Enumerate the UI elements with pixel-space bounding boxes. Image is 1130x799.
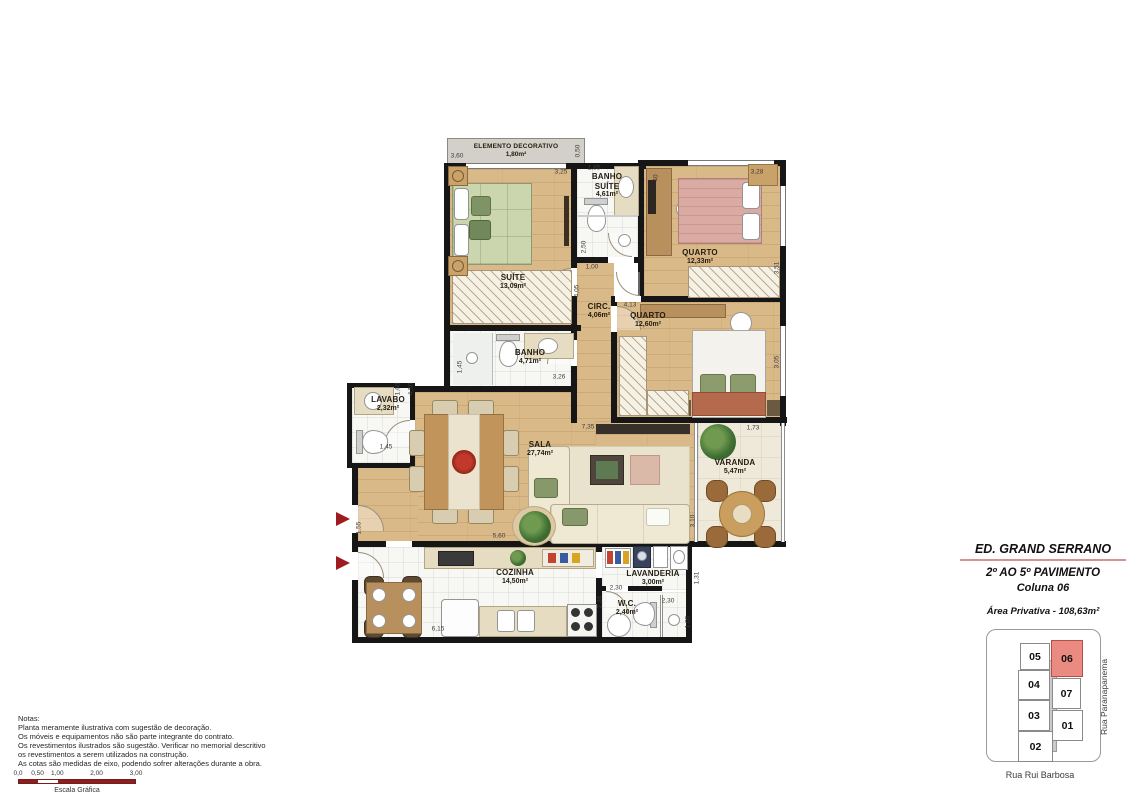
dimension-label: 1,45	[380, 444, 393, 451]
dimension-label: 1,31	[694, 572, 701, 585]
dining-chair	[468, 508, 494, 524]
room-label-suite: SUÍTE13,09m²	[500, 273, 526, 291]
keyplan-unit-05: 05	[1020, 643, 1050, 670]
kitchen-sink	[517, 610, 535, 632]
ceiling-symbol	[448, 256, 468, 276]
quarto2-wardrobe	[647, 390, 689, 416]
utensil	[560, 553, 568, 563]
keyplan-unit-02: 02	[1018, 731, 1053, 762]
varanda-table-center	[732, 504, 752, 524]
room-label-banho: BANHO4,71m²	[515, 348, 545, 366]
dining-chair	[503, 430, 519, 456]
dimension-label: 4,13	[624, 302, 637, 309]
room-label-circ: CIRC.4,06m²	[588, 302, 611, 320]
room-label-elemento-decorativo: ELEMENTO DECORATIVO1,80m²	[474, 143, 558, 159]
burner	[584, 608, 593, 617]
room-label-varanda: VARANDA5,47m²	[715, 458, 756, 476]
dimension-label: 3,60	[451, 153, 464, 160]
dimension-label: 1,45	[457, 361, 464, 374]
dining-chair	[409, 466, 425, 492]
scale-caption: Escala Gráfica	[18, 787, 136, 794]
suite-cushion	[471, 196, 491, 216]
room-label-lavabo: LAVABO2,32m²	[371, 395, 405, 413]
laundry-tank-basin	[673, 550, 685, 564]
chaise-pillow	[534, 478, 558, 498]
varanda-plant	[700, 424, 736, 460]
entry-arrow	[336, 512, 350, 526]
dimension-label: 6,15	[432, 626, 445, 633]
dimension-label: 5,60	[493, 533, 506, 540]
quarto2-pillow	[700, 374, 726, 394]
dimension-label: 2,50	[581, 241, 588, 254]
suite-tv-panel	[564, 196, 569, 246]
sala-plant	[519, 511, 551, 543]
keyplan-unit-04: 04	[1018, 670, 1050, 700]
street-label-right: Rua Paranapanema	[1099, 637, 1111, 757]
burner	[571, 622, 580, 631]
notes-lines: Planta meramente ilustrativa com sugestã…	[18, 723, 266, 768]
banho-suite-shower-drain	[618, 234, 631, 247]
room-label-lavanderia: LAVANDERIA3,00m²	[626, 569, 679, 587]
quarto2-pillow	[730, 374, 756, 394]
sofa-pillow	[562, 508, 588, 526]
burner	[571, 608, 580, 617]
ceiling-symbol	[448, 166, 468, 186]
utensil	[572, 553, 580, 563]
note-line: Os revestimentos ilustrados são sugestão…	[18, 741, 266, 750]
note-line: As cotas são medidas de eixo, podendo so…	[18, 759, 266, 768]
door-gap	[386, 541, 412, 547]
banho-suite-shower-line	[578, 215, 638, 217]
note-line: Os móveis e equipamentos não são parte i…	[18, 732, 266, 741]
shower-head	[668, 614, 680, 626]
kitchen-plant	[510, 550, 526, 566]
suite-pillow	[454, 188, 469, 220]
coffee-table-top	[596, 461, 618, 479]
suite-window	[466, 163, 566, 169]
quarto1-side-window	[780, 186, 786, 246]
dimension-label: 4,50	[408, 383, 415, 396]
dimension-label: 0,50	[575, 145, 582, 158]
dining-chair	[432, 508, 458, 524]
scale-tick-label: 0,50	[31, 770, 44, 777]
quarto2-side-window	[780, 326, 786, 396]
building-name: ED. GRAND SERRANO	[960, 542, 1126, 556]
door-arc	[616, 272, 640, 296]
quarto2-wardrobe	[619, 336, 647, 416]
dining-chair	[503, 466, 519, 492]
keyplan-unit-03: 03	[1018, 700, 1050, 731]
kitchen-sink	[497, 610, 515, 632]
scale-segment	[96, 780, 135, 783]
dimension-label: 40	[653, 174, 660, 181]
notes-heading: Notas:	[18, 714, 266, 723]
scale-tick-label: 1,00	[51, 770, 64, 777]
room-label-banho-suite: BANHO SUÍTE4,61m²	[586, 172, 628, 200]
dimension-label: 3,28	[751, 169, 764, 176]
dining-centerpiece	[452, 450, 476, 474]
suite-cushion	[469, 220, 491, 240]
dimension-label: 2,30	[610, 585, 623, 592]
dimension-label: 4,05	[574, 285, 581, 298]
suite-pillow	[454, 224, 469, 256]
plate	[402, 614, 416, 628]
banho-suite-toilet	[587, 205, 606, 232]
wall	[444, 163, 450, 392]
scale-bar	[18, 779, 136, 784]
dimension-label: 3,26	[553, 374, 566, 381]
dimension-label: 1,00	[586, 264, 599, 271]
supply	[615, 551, 621, 564]
dimension-label: 3,05	[774, 356, 781, 369]
floors-label: 2º AO 5º PAVIMENTO	[960, 567, 1126, 579]
scale-tick-label: 2,00	[90, 770, 103, 777]
plate	[402, 588, 416, 602]
notes: Notas: Planta meramente ilustrativa com …	[18, 714, 266, 768]
door-gap	[608, 257, 634, 263]
sofa-pillow	[646, 508, 670, 526]
utensil	[548, 553, 556, 563]
burner	[584, 622, 593, 631]
dimension-label: 3,25	[555, 169, 568, 176]
room-label-sala: SALA27,74m²	[527, 440, 553, 458]
quarto2-throw	[692, 392, 766, 416]
private-area-label: Área Privativa - 108,63m²	[960, 606, 1126, 617]
banho-shower-head	[466, 352, 478, 364]
washing-machine-door	[637, 551, 647, 561]
scale-segment	[19, 780, 38, 783]
room-label-wc: W.C.2,40m²	[616, 599, 638, 617]
dimension-label: 2,36	[597, 596, 604, 609]
keyplan-unit-06: 06	[1051, 640, 1083, 677]
dimension-label: 7,35	[582, 424, 595, 431]
tv-cabinet	[596, 424, 690, 434]
dimension-label: 1,60	[395, 383, 402, 396]
room-label-quarto-2: QUARTO12,60m²	[630, 311, 666, 329]
coffee-table	[630, 455, 660, 485]
dimension-label: 1,55	[356, 522, 363, 535]
dimension-label: 1,85	[588, 165, 601, 172]
wall	[415, 386, 577, 392]
banho-toilet-tank	[496, 334, 520, 341]
scale-segment	[38, 780, 57, 783]
quarto1-pillow	[742, 213, 760, 240]
dimension-label: 1,05	[685, 616, 692, 629]
fridge	[441, 599, 479, 637]
dining-chair	[409, 430, 425, 456]
dryer	[653, 546, 668, 568]
keyplan: 05060407030102	[986, 629, 1101, 762]
dimension-label: 2,30	[662, 598, 675, 605]
note-line: Planta meramente ilustrativa com sugestã…	[18, 723, 266, 732]
cooktop	[438, 551, 474, 566]
floor-plan-sheet: ELEMENTO DECORATIVO1,80m²BANHO SUÍTE4,61…	[0, 0, 1130, 799]
scale-segment	[58, 780, 97, 783]
dimension-label: 1,73	[747, 425, 760, 432]
supply	[607, 551, 613, 564]
room-label-quarto-1: QUARTO12,33m²	[682, 248, 718, 266]
wall	[571, 163, 577, 263]
scale-tick-label: 3,00	[130, 770, 143, 777]
plate	[372, 614, 386, 628]
wall	[444, 325, 581, 331]
plate	[372, 588, 386, 602]
title-divider	[960, 559, 1126, 561]
room-label-cozinha: COZINHA14,50m²	[496, 568, 534, 586]
column-label: Coluna 06	[960, 582, 1126, 594]
note-line: os revestimentos a serem utilizados na c…	[18, 750, 266, 759]
keyplan-unit-07: 07	[1052, 678, 1081, 709]
wall	[352, 637, 692, 643]
scale-tick-label: 0,0	[13, 770, 22, 777]
street-label-bottom: Rua Rui Barbosa	[972, 770, 1108, 780]
door-gap	[596, 552, 602, 578]
quarto1-wardrobe	[688, 266, 780, 298]
entry-arrow	[336, 556, 350, 570]
quarto1-tv	[648, 180, 656, 214]
dimension-label: 3,51	[774, 262, 781, 275]
title-block: ED. GRAND SERRANO 2º AO 5º PAVIMENTO Col…	[960, 542, 1126, 617]
quarto1-pillow	[742, 182, 760, 209]
supply	[623, 551, 629, 564]
quarto2-nightstand	[767, 400, 780, 416]
dimension-label: 3,10	[690, 515, 697, 528]
keyplan-unit-01: 01	[1052, 710, 1083, 741]
varanda-railing	[781, 423, 785, 542]
